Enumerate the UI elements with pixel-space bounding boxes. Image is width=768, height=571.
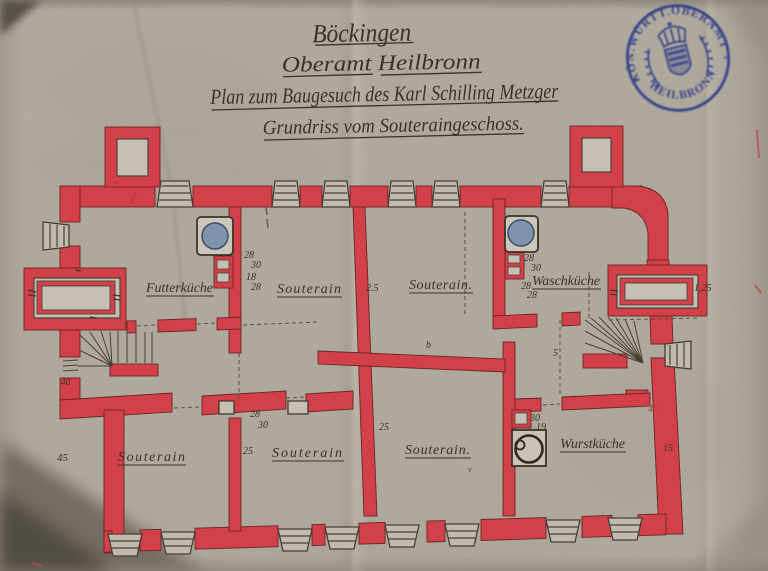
svg-text:19: 19: [536, 422, 546, 433]
svg-text:b: b: [426, 340, 431, 351]
svg-text:Wurstküche: Wurstküche: [560, 437, 625, 452]
svg-text:45: 45: [57, 452, 69, 464]
svg-text:28: 28: [250, 409, 260, 420]
svg-text:Souterain: Souterain: [277, 282, 341, 297]
svg-text:Souterain: Souterain: [272, 446, 342, 461]
svg-text:Futterküche: Futterküche: [145, 281, 213, 296]
svg-text:Souterain.: Souterain.: [409, 278, 472, 293]
svg-text:28: 28: [527, 290, 537, 301]
svg-text:28: 28: [251, 282, 261, 293]
svg-text:25: 25: [379, 422, 389, 433]
svg-text:Waschküche: Waschküche: [532, 274, 600, 289]
svg-text:Souterain.: Souterain.: [405, 443, 470, 458]
svg-text:v: v: [468, 465, 472, 474]
svg-text:40: 40: [61, 377, 71, 387]
svg-text:30: 30: [257, 420, 268, 431]
svg-text:Souterain: Souterain: [118, 450, 185, 465]
svg-text:40: 40: [648, 404, 658, 415]
svg-text:30: 30: [530, 263, 541, 274]
svg-text:1,25: 1,25: [694, 283, 712, 294]
svg-text:15.: 15.: [663, 443, 676, 454]
svg-text:30: 30: [250, 260, 261, 271]
svg-text:5: 5: [553, 348, 558, 359]
svg-text:2.5: 2.5: [366, 283, 379, 294]
svg-text:25: 25: [243, 446, 253, 457]
